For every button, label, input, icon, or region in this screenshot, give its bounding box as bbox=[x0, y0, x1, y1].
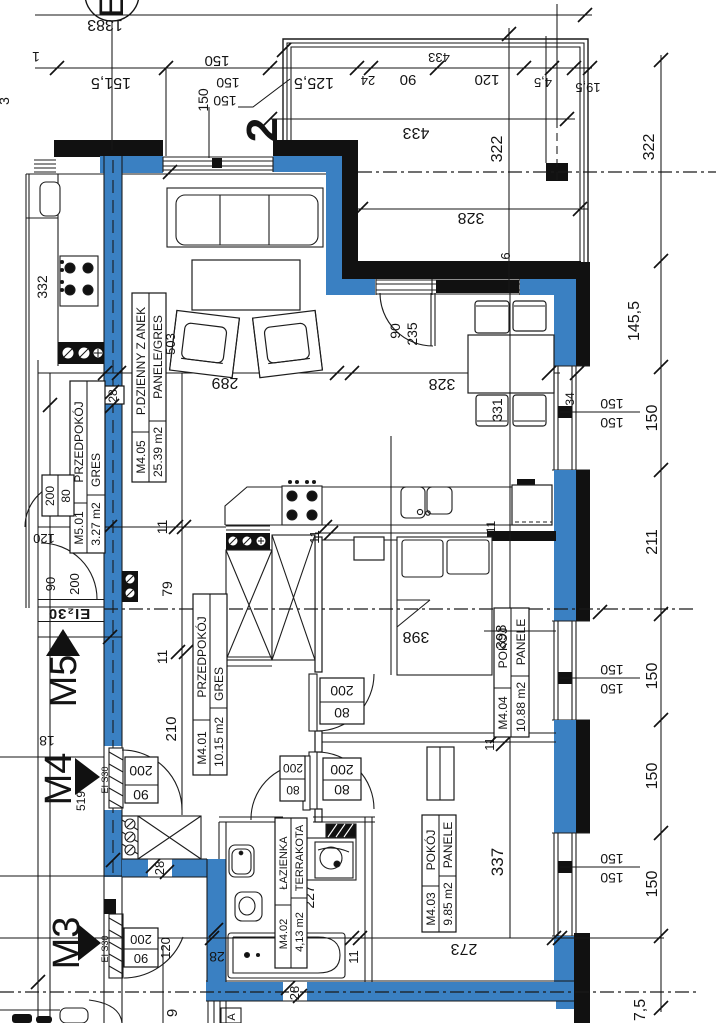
svg-text:150: 150 bbox=[600, 851, 624, 867]
svg-text:337: 337 bbox=[488, 848, 507, 876]
svg-text:398: 398 bbox=[403, 628, 430, 645]
svg-text:150: 150 bbox=[600, 415, 624, 431]
svg-text:200: 200 bbox=[330, 762, 354, 778]
svg-text:398: 398 bbox=[493, 624, 510, 649]
svg-text:19,5: 19,5 bbox=[575, 80, 600, 95]
svg-text:150: 150 bbox=[644, 405, 661, 432]
svg-text:25.39 m2: 25.39 m2 bbox=[151, 427, 165, 477]
svg-text:150: 150 bbox=[644, 663, 661, 690]
svg-text:P.DZIENNY Z ANEK: P.DZIENNY Z ANEK bbox=[134, 307, 148, 415]
svg-text:211: 211 bbox=[644, 529, 661, 555]
svg-text:120: 120 bbox=[474, 71, 499, 88]
svg-text:EI S30: EI S30 bbox=[100, 766, 110, 793]
svg-text:90: 90 bbox=[43, 577, 58, 591]
svg-text:150: 150 bbox=[644, 871, 661, 898]
svg-text:11: 11 bbox=[307, 530, 322, 544]
svg-text:PANELE: PANELE bbox=[441, 822, 455, 868]
svg-text:328: 328 bbox=[429, 375, 456, 392]
svg-text:150: 150 bbox=[195, 88, 211, 112]
svg-text:3: 3 bbox=[0, 97, 12, 105]
svg-text:11: 11 bbox=[154, 650, 170, 665]
svg-text:79: 79 bbox=[159, 581, 175, 597]
svg-text:322: 322 bbox=[489, 136, 506, 163]
svg-text:4,5: 4,5 bbox=[534, 75, 552, 90]
svg-text:151,5: 151,5 bbox=[91, 74, 131, 91]
svg-text:125,5: 125,5 bbox=[294, 74, 334, 91]
svg-text:9.85 m2: 9.85 m2 bbox=[441, 882, 455, 926]
svg-text:M4.05: M4.05 bbox=[134, 440, 148, 474]
svg-text:M4.01: M4.01 bbox=[195, 731, 209, 765]
svg-text:433: 433 bbox=[403, 124, 430, 141]
svg-text:PANELE/GRES: PANELE/GRES bbox=[151, 315, 165, 399]
svg-text:1: 1 bbox=[32, 49, 40, 65]
svg-text:PRZEDPOKÓJ: PRZEDPOKÓJ bbox=[71, 401, 86, 482]
svg-text:EI S30: EI S30 bbox=[100, 935, 110, 962]
svg-text:M4.04: M4.04 bbox=[496, 696, 510, 730]
svg-text:11: 11 bbox=[484, 520, 498, 533]
svg-text:28: 28 bbox=[152, 861, 167, 875]
svg-text:433: 433 bbox=[428, 50, 450, 65]
svg-text:90: 90 bbox=[400, 71, 417, 88]
svg-text:10.88 m2: 10.88 m2 bbox=[514, 682, 528, 732]
svg-text:200: 200 bbox=[43, 486, 57, 506]
svg-text:11: 11 bbox=[154, 520, 170, 535]
svg-text:150: 150 bbox=[644, 763, 661, 790]
svg-text:3.27 m2: 3.27 m2 bbox=[89, 502, 103, 546]
svg-text:18: 18 bbox=[39, 733, 55, 749]
svg-text:10.15 m2: 10.15 m2 bbox=[212, 717, 226, 767]
svg-text:273: 273 bbox=[451, 940, 478, 957]
svg-text:34: 34 bbox=[563, 392, 577, 406]
svg-text:150: 150 bbox=[600, 870, 624, 886]
svg-text:90: 90 bbox=[133, 787, 149, 803]
svg-text:145,5: 145,5 bbox=[626, 301, 643, 341]
svg-text:328: 328 bbox=[458, 209, 485, 226]
svg-text:150: 150 bbox=[204, 52, 229, 69]
svg-text:M4.02: M4.02 bbox=[278, 919, 290, 950]
svg-text:80: 80 bbox=[334, 705, 350, 721]
svg-text:ŁAZIENKA: ŁAZIENKA bbox=[278, 836, 290, 890]
svg-text:1383: 1383 bbox=[87, 16, 123, 33]
svg-text:80: 80 bbox=[286, 783, 300, 797]
svg-text:6: 6 bbox=[498, 252, 513, 259]
svg-text:200: 200 bbox=[330, 683, 354, 699]
svg-text:90: 90 bbox=[387, 323, 403, 339]
svg-text:150: 150 bbox=[600, 662, 624, 678]
svg-text:PRZEDPOKÓJ: PRZEDPOKÓJ bbox=[194, 616, 209, 697]
svg-text:150: 150 bbox=[600, 681, 624, 697]
svg-text:EI₂30: EI₂30 bbox=[48, 605, 91, 622]
svg-text:150: 150 bbox=[213, 93, 237, 109]
svg-text:7,5: 7,5 bbox=[632, 999, 649, 1021]
svg-text:GRES: GRES bbox=[212, 667, 226, 701]
svg-text:200: 200 bbox=[129, 763, 153, 779]
svg-text:210: 210 bbox=[163, 716, 180, 741]
svg-text:332: 332 bbox=[34, 275, 50, 299]
svg-text:28: 28 bbox=[287, 986, 302, 1000]
svg-text:POKÓJ: POKÓJ bbox=[423, 830, 438, 871]
svg-text:A: A bbox=[226, 1013, 238, 1021]
svg-text:M4: M4 bbox=[38, 753, 80, 806]
svg-text:322: 322 bbox=[641, 134, 658, 161]
svg-text:150: 150 bbox=[216, 75, 240, 91]
svg-text:80: 80 bbox=[334, 782, 350, 798]
svg-text:4,13 m2: 4,13 m2 bbox=[294, 912, 306, 952]
svg-text:120: 120 bbox=[158, 937, 173, 959]
svg-text:200: 200 bbox=[283, 761, 303, 775]
svg-text:TERRAKOTA: TERRAKOTA bbox=[294, 824, 306, 891]
svg-text:M4.03: M4.03 bbox=[424, 892, 438, 926]
svg-text:120: 120 bbox=[33, 531, 55, 546]
svg-text:331: 331 bbox=[489, 398, 505, 422]
svg-text:150: 150 bbox=[600, 396, 624, 412]
svg-text:80: 80 bbox=[59, 489, 73, 503]
svg-text:9: 9 bbox=[164, 1009, 181, 1017]
svg-text:200: 200 bbox=[130, 932, 152, 947]
svg-text:28: 28 bbox=[209, 949, 225, 965]
svg-text:E: E bbox=[93, 0, 131, 17]
svg-text:GRES: GRES bbox=[89, 453, 103, 487]
svg-text:289: 289 bbox=[212, 374, 239, 391]
svg-text:M5: M5 bbox=[43, 655, 85, 708]
svg-text:2: 2 bbox=[238, 118, 287, 142]
svg-text:24: 24 bbox=[361, 73, 375, 88]
svg-text:28: 28 bbox=[106, 389, 120, 403]
svg-text:11: 11 bbox=[482, 737, 497, 751]
svg-text:200: 200 bbox=[67, 573, 82, 595]
svg-text:235: 235 bbox=[404, 322, 420, 346]
svg-text:11: 11 bbox=[346, 950, 361, 964]
svg-text:90: 90 bbox=[134, 951, 148, 966]
svg-text:PANELE: PANELE bbox=[514, 619, 528, 665]
